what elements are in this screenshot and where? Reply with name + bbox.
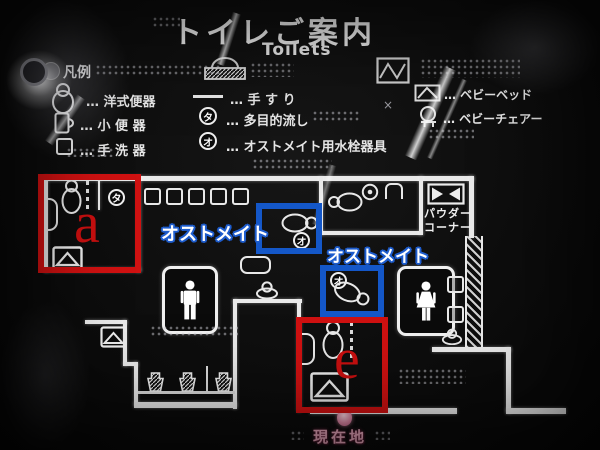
wall-segment [432, 347, 511, 352]
braille-dots [250, 62, 294, 77]
tactile-toilet-map-photo: トイレご案内 Toilets 凡例 … 洋式便器 … 小 便 器 … 手 洗 器… [0, 0, 600, 450]
legend-bullet-icon [42, 62, 60, 80]
braille-dots [95, 64, 220, 77]
wall-segment [506, 408, 566, 414]
female-icon [409, 277, 443, 325]
western-toilet-icon [50, 82, 76, 114]
counter-basin-icon [240, 256, 271, 274]
braille-dots [252, 158, 332, 169]
legend-label-urinal: … 小 便 器 [80, 115, 146, 134]
washbasin-icon [166, 188, 183, 205]
baby-bed-icon [414, 84, 441, 102]
wall-segment [419, 176, 423, 235]
handrail-icon [193, 95, 223, 98]
wall-segment [319, 231, 423, 235]
braille-dots [312, 110, 360, 123]
urinal-icon [54, 112, 74, 134]
wall-segment [134, 402, 237, 408]
braille-dots [150, 325, 238, 338]
annotation-box-blue-2 [320, 265, 384, 317]
legend-label-western-toilet: … 洋式便器 [86, 91, 156, 110]
washbasin-icon [144, 188, 161, 205]
baby-bed-icon [100, 326, 127, 348]
urinal-icon [145, 371, 166, 393]
wall-segment [233, 299, 302, 303]
washbasin-icon [232, 188, 249, 205]
legend-label-baby-chair: … ベビーチェアー [443, 110, 542, 127]
ostomate-label-1: オストメイト [161, 220, 269, 246]
urinal-icon [213, 371, 234, 393]
urinal-icon [177, 371, 198, 393]
braille-dots [398, 368, 466, 384]
round-basin-icon [361, 183, 379, 201]
page-subtitle: Toilets [262, 40, 331, 60]
legend-label-baby-bed: … ベビーベッド [444, 86, 532, 103]
baby-bed-top-icon [376, 57, 410, 84]
powder-corner-label: パウダー コーナー [424, 207, 472, 235]
toilet-icon [327, 191, 363, 213]
corner-glow [0, 300, 90, 450]
corner-glow [470, 0, 600, 95]
cross-mark: × [383, 98, 393, 112]
legend-label-ostomate-fixture: … オストメイト用水栓器具 [226, 136, 387, 155]
annotation-letter-e: e [334, 330, 360, 388]
current-location-label: 現在地 [313, 426, 367, 447]
washbasin-icon [385, 183, 403, 199]
legend-label-handrail: … 手 す り [230, 89, 296, 108]
powder-corner-mirror-icon [427, 183, 465, 205]
washbasin-icon [188, 188, 205, 205]
ostomate-label-2: オストメイト [327, 242, 429, 267]
washbasin-icon [210, 188, 227, 205]
washbasin-icon [447, 276, 464, 293]
wall-segment [506, 347, 511, 413]
wall-segment [85, 320, 127, 324]
wall-segment [134, 362, 138, 406]
toilet-front-icon [441, 327, 463, 345]
ta-circle-icon: タ [199, 107, 217, 125]
entrance-ramp-hatch [465, 236, 483, 348]
braille-dots [290, 430, 304, 440]
o-circle-icon: オ [199, 132, 217, 150]
annotation-letter-a: a [74, 194, 100, 252]
handrail-icon [206, 366, 208, 392]
braille-dots [152, 16, 180, 29]
braille-dots [428, 128, 474, 140]
male-icon [173, 277, 207, 323]
braille-dots [66, 147, 114, 157]
toilet-front-icon [255, 280, 279, 299]
legend-heading: 凡例 [63, 62, 91, 82]
baby-chair-icon [418, 105, 440, 129]
womens-room-sign [397, 266, 455, 336]
braille-dots [374, 430, 390, 440]
braille-dots [420, 58, 520, 78]
legend-label-multipurpose-sink: … 多目的流し [226, 110, 309, 129]
mens-room-sign [162, 266, 218, 334]
washbasin-icon [447, 306, 464, 323]
